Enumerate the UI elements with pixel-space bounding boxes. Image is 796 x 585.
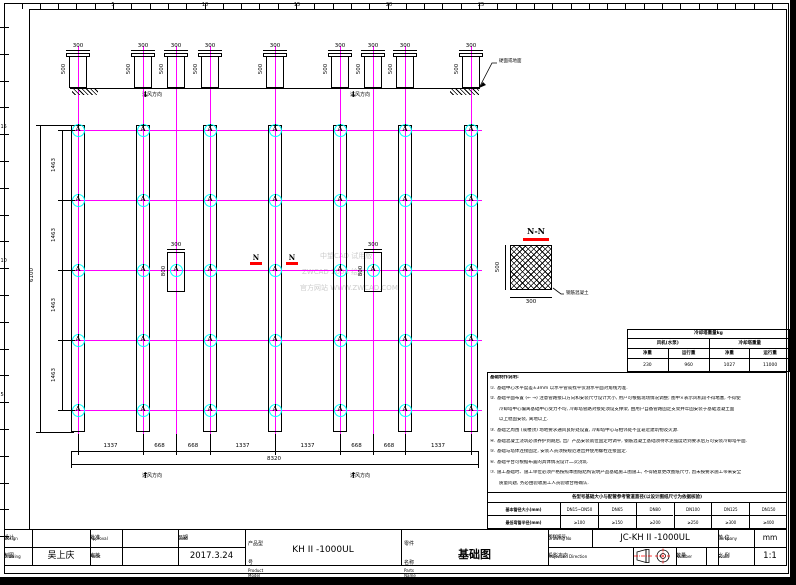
approval-by-value — [122, 529, 178, 547]
pedestal-width-dim: 300 — [264, 43, 286, 49]
ruler-tick-top — [571, 3, 572, 9]
design-label: 设计Design — [4, 529, 32, 547]
dim-ext — [58, 410, 75, 411]
ruler-tick-left — [0, 322, 9, 323]
edge-strip-right — [790, 0, 796, 585]
anchor-letter: A — [137, 126, 150, 134]
pedestal-height-dim: 500 — [193, 61, 199, 77]
title-block-vline — [4, 529, 5, 566]
weight-table-group: 冷却塔重量 — [709, 339, 791, 349]
pipe-table-cell: ≥300 — [711, 516, 749, 529]
ground-line — [70, 88, 480, 89]
scale-value: 1:1 — [754, 547, 786, 565]
pedestal-dim-line — [361, 50, 385, 51]
weight-table-value: 960 — [668, 359, 709, 372]
strip-foundation — [136, 125, 150, 432]
col-dim-label: 668 — [178, 443, 208, 449]
section-cut-letter: N — [286, 253, 298, 261]
ruler-tick-top — [131, 3, 132, 9]
weight-table-value: 230 — [627, 359, 668, 372]
dim-ext — [36, 125, 74, 126]
anchor-letter: A — [399, 196, 412, 204]
pipe-table-cell: 最低弯管半径(mm) — [487, 516, 560, 529]
dim-ext — [71, 451, 72, 468]
ruler-number-top: 15 — [291, 3, 303, 9]
pipe-table-cell: ≥100 — [560, 516, 598, 529]
title-block-vline — [401, 529, 402, 566]
ruler-tick-left — [0, 349, 9, 350]
note-line: ③. 基础之周围 (或楼顶) 场地要求通风良好处设置, 冷却塔中心与相邻处不宜靠… — [490, 428, 787, 434]
anchor-letter: A — [269, 266, 282, 274]
dim-ext — [58, 270, 75, 271]
title-block-vline — [32, 529, 33, 566]
col-dim-label: 668 — [342, 443, 372, 449]
dim-ext — [36, 432, 74, 433]
anchor-letter: A — [399, 406, 412, 414]
ruler-tick-top — [772, 3, 773, 9]
anchor-letter: A — [465, 266, 478, 274]
product-model-value: KH II -1000UL — [245, 545, 401, 555]
col-dim-label: 1337 — [293, 443, 323, 449]
pipe-table-cell: ≥250 — [674, 516, 712, 529]
dim-ext — [58, 200, 75, 201]
row-overall-label: 6100 — [29, 267, 35, 283]
title-block-vline — [592, 529, 593, 547]
pedestal-body — [364, 56, 382, 88]
col-dim-label: 668 — [374, 443, 404, 449]
ruler-tick-top — [699, 3, 700, 9]
detail-height-dim: 800 — [161, 263, 167, 279]
title-block-vline — [245, 529, 246, 566]
ruler-tick-left — [0, 107, 9, 108]
pedestal-width-dim: 300 — [394, 43, 416, 49]
unit-value: mm — [754, 529, 786, 547]
ruler-tick-top — [333, 3, 334, 9]
col-overall-label: 8320 — [259, 456, 289, 462]
concrete-hatch-block — [510, 245, 552, 290]
dim-ext — [58, 130, 75, 131]
pipe-table-cell: 基本管径大小(mm) — [487, 503, 560, 516]
ruler-number-top: 10 — [199, 3, 211, 9]
ruler-tick-left — [0, 402, 9, 403]
section-side-dim: 500 — [495, 259, 501, 275]
pedestal-body — [331, 56, 349, 88]
weight-table-value: 1027 — [709, 359, 750, 372]
weight-table-header: 净重 — [709, 349, 750, 359]
section-bottom-dim: 300 — [519, 299, 543, 305]
note-line: ⑤. 基础与塔体连接固定, 安装人员须按规范进出并使用螺栓连接固定. — [490, 449, 787, 455]
note-line: ④. 基础混凝土浇筑必须养护到期后, 出厂产品安装就位固定时调平, 钢筋混凝土基… — [490, 439, 787, 445]
dim-ext — [58, 340, 75, 341]
weight-table-header: 净重 — [627, 349, 668, 359]
pedestal-body — [462, 56, 480, 88]
dim-ext — [340, 434, 341, 455]
title-block-vline — [548, 529, 549, 566]
anchor-letter: A — [465, 406, 478, 414]
ruler-tick-top — [186, 3, 187, 9]
pedestal-width-dim: 300 — [165, 43, 187, 49]
anchor-letter: A — [137, 406, 150, 414]
ruler-tick-top — [40, 3, 41, 9]
date-label: 日期Date — [178, 529, 245, 547]
drawing-label: 制图Drawing — [4, 547, 32, 565]
row-dim-label: 1463 — [51, 297, 57, 313]
dim-ext — [478, 451, 479, 468]
anchor-letter: A — [204, 266, 217, 274]
drawing-sheet: 中望CAD 试用版 ZWCAD 2008 绘制 官方网站 WWW.ZWCAD.C… — [0, 0, 796, 585]
pipe-table-cell: DN15~DN50 — [560, 503, 598, 516]
ruler-tick-top — [259, 3, 260, 9]
ruler-tick-top — [552, 3, 553, 9]
projection-symbol-icon — [634, 548, 675, 564]
section-title-underline — [523, 238, 549, 241]
dim-ext — [143, 434, 144, 455]
ruler-tick-top — [625, 3, 626, 9]
ruler-tick-left — [0, 509, 9, 510]
pedestal-height-dim: 500 — [388, 61, 394, 77]
anchor-letter: A — [334, 336, 347, 344]
ruler-tick-top — [278, 3, 279, 9]
up-arrow-icon: ↑ — [142, 472, 149, 480]
ruler-tick-left — [0, 375, 9, 376]
airflow-bottom-left: ↑ 进风方向 — [142, 472, 162, 480]
weight-table-value: 11000 — [749, 359, 790, 372]
pedestal-height-dim: 500 — [159, 61, 165, 77]
dim-overall-bottom — [71, 464, 478, 465]
drawing-no-label: 图样编号 Drawing No — [548, 529, 592, 547]
title-block-vline — [718, 529, 719, 566]
anchor-letter: A — [334, 196, 347, 204]
pedestal-dim-line — [131, 50, 155, 51]
pedestal-body — [396, 56, 414, 88]
weight-table-title: 冷却塔重量kg — [627, 329, 790, 339]
pedestal-body — [69, 56, 87, 88]
pedestal-width-dim: 300 — [199, 43, 221, 49]
centerline-vertical — [176, 46, 177, 435]
section-cut-underline — [250, 262, 262, 265]
title-block-mid-line — [4, 547, 245, 548]
anchor-letter: A — [269, 126, 282, 134]
ruler-tick-left — [0, 429, 9, 430]
ruler-tick-top — [223, 3, 224, 9]
ruler-tick-top — [22, 3, 23, 9]
ruler-tick-top — [351, 3, 352, 9]
col-dim-label: 1337 — [228, 443, 258, 449]
inner-frame-top — [29, 9, 786, 10]
pipe-table-cell: DN80 — [636, 503, 674, 516]
strip-foundation — [333, 125, 347, 432]
drawing-no-value: JC-KH II -1000UL — [592, 529, 718, 547]
note-line: 质量问题, 务必由验收施工人员验收合格确认. — [499, 481, 787, 487]
ruler-tick-top — [497, 3, 498, 9]
weight-table-group: 风机(水泵) — [627, 339, 709, 349]
pedestal-dim-line — [459, 50, 483, 51]
ruler-tick-top — [241, 3, 242, 9]
pedestal-dim-line — [263, 50, 287, 51]
dim-ext — [405, 434, 406, 455]
pedestal-body — [134, 56, 152, 88]
anchor-letter: A — [269, 406, 282, 414]
pedestal-body — [167, 56, 185, 88]
col-dim-label: 668 — [145, 443, 175, 449]
anchor-letter: A — [204, 196, 217, 204]
dim-ext — [210, 434, 211, 455]
pedestal-dim-line — [198, 50, 222, 51]
pedestal-height-dim: 500 — [454, 61, 460, 77]
anchor-letter: A — [334, 406, 347, 414]
weight-table-header: 运行重 — [749, 349, 790, 359]
audit-label: 审核Audit — [90, 547, 122, 565]
ruler-number-left: 5 — [1, 393, 12, 399]
airflow-top-left: ↓ 进风方向 — [142, 91, 162, 99]
pipe-table-cell: DN125 — [711, 503, 749, 516]
ruler-tick-top — [95, 3, 96, 9]
pipe-table-cell: DN65 — [598, 503, 636, 516]
ground-hatch-right — [450, 89, 479, 95]
ruler-tick-left — [0, 188, 9, 189]
ruler-tick-top — [442, 3, 443, 9]
col-dim-label: 1337 — [96, 443, 126, 449]
pedestal-dim-line — [66, 50, 90, 51]
down-arrow-icon: ↓ — [350, 91, 357, 99]
up-arrow-icon: ↑ — [350, 472, 357, 480]
detail-box — [167, 252, 185, 292]
ruler-tick-top — [680, 3, 681, 9]
title-block-vline — [90, 529, 91, 566]
airflow-top-right: ↓ 进风方向 — [350, 91, 370, 99]
section-cut-underline — [286, 262, 298, 265]
pedestal-height-dim: 500 — [356, 61, 362, 77]
watermark-line-3: 官方网站 WWW.ZWCAD.COM — [300, 283, 398, 293]
ruler-number-left: 15 — [1, 125, 12, 131]
drawing-by-value: 吴上庆 — [32, 547, 90, 565]
anchor-letter: A — [204, 406, 217, 414]
date-value: 2017.3.24 — [178, 547, 245, 565]
row-dim-label: 1463 — [51, 157, 57, 173]
projection-label: 投影方向 Projection Direction — [548, 547, 633, 565]
number-value — [706, 547, 718, 565]
anchor-letter: A — [269, 336, 282, 344]
dim-ext — [275, 434, 276, 455]
col-dim-label: 1337 — [423, 443, 453, 449]
pipe-table-header: 各型号基础大小与配管参考管道直径(以设计图纸尺寸为依据核验) — [487, 492, 787, 503]
note-line: 以上稳固安装, 离地以上. — [499, 417, 787, 423]
section-dim-line-bottom — [510, 297, 552, 298]
pipe-table-cell: DN100 — [674, 503, 712, 516]
weight-table-header: 运行重 — [668, 349, 709, 359]
ruler-tick-top — [735, 3, 736, 9]
approval-label: 批准Approval — [90, 529, 122, 547]
anchor-letter: A — [465, 336, 478, 344]
note-line: ①. 基础中心水平度差±3mm 以水平管或找平仪测水平面对角线为准. — [490, 386, 787, 392]
edge-strip-bottom — [0, 577, 796, 585]
note-line: 冷却塔中心偏离基础中心受力不均, 冷却塔管路对接处须设支撑架, 由用户自备管路固… — [499, 407, 787, 413]
note-line: 基础制作说明: — [490, 375, 787, 381]
ruler-tick-top — [461, 3, 462, 9]
detail-dim-line — [364, 249, 382, 250]
strip-foundation — [268, 125, 282, 432]
title-block-vline — [676, 547, 677, 565]
anchor-letter: A — [399, 336, 412, 344]
pipe-table-cell: ≥400 — [749, 516, 787, 529]
detail-width-dim: 300 — [362, 242, 384, 248]
ground-hatch-left — [72, 89, 98, 95]
reinforced-concrete-label: 钢筋混凝土 — [566, 291, 589, 296]
row-dim-label: 1463 — [51, 227, 57, 243]
anchor-letter: A — [334, 126, 347, 134]
anchor-letter: A — [137, 266, 150, 274]
pedestal-width-dim: 300 — [67, 43, 89, 49]
scale-label: 比 例Scale — [718, 547, 754, 565]
pedestal-width-dim: 300 — [329, 43, 351, 49]
ruler-tick-top — [424, 3, 425, 9]
ruler-tick-left — [0, 81, 9, 82]
title-block-vline — [633, 547, 634, 565]
note-line: ⑥. 基础平台可根据布置的具体情况设计二次浇筑. — [490, 460, 787, 466]
section-title: N-N — [521, 226, 551, 236]
ruler-tick-top — [76, 3, 77, 9]
ruler-tick-left — [0, 456, 9, 457]
parts-name-value: 基础图 — [401, 546, 548, 562]
ruler-number-top: 25 — [475, 3, 487, 9]
strip-foundation — [203, 125, 217, 432]
title-block-vline — [754, 529, 755, 566]
ruler-tick-left — [0, 161, 9, 162]
ruler-tick-left — [0, 215, 9, 216]
dim-overall-left — [40, 125, 41, 432]
strip-foundation — [398, 125, 412, 432]
ruler-number-top: 5 — [107, 3, 119, 9]
pedestal-height-dim: 500 — [61, 61, 67, 77]
title-block-mid-line — [548, 547, 786, 548]
pedestal-width-dim: 300 — [460, 43, 482, 49]
audit-by-value — [122, 547, 178, 565]
ruler-tick-left — [0, 241, 9, 242]
detail-box — [364, 252, 382, 292]
ruler-tick-top — [717, 3, 718, 9]
ruler-tick-top — [662, 3, 663, 9]
pedestal-width-dim: 300 — [132, 43, 154, 49]
row-dim-label: 1463 — [51, 367, 57, 383]
pedestal-width-dim: 300 — [362, 43, 384, 49]
pipe-table-cell: ≥200 — [636, 516, 674, 529]
dim-ext — [78, 434, 79, 455]
ruler-tick-top — [314, 3, 315, 9]
centerline-vertical — [373, 46, 374, 435]
anchor-letter: A — [137, 196, 150, 204]
detail-height-dim: 800 — [358, 263, 364, 279]
title-block-vline — [178, 529, 179, 566]
ruler-tick-left — [0, 54, 9, 55]
design-by-value — [32, 529, 90, 547]
anchor-letter: A — [334, 266, 347, 274]
anchor-letter: A — [204, 336, 217, 344]
pipe-table-cell: ≥150 — [598, 516, 636, 529]
ruler-tick-top — [534, 3, 535, 9]
ruler-number-left: 10 — [1, 259, 12, 265]
ruler-tick-top — [406, 3, 407, 9]
section-cut-letter: N — [250, 253, 262, 261]
pedestal-dim-line — [164, 50, 188, 51]
dim-ext — [176, 434, 177, 455]
anchor-letter: A — [465, 196, 478, 204]
note-line: ②. 基础平面布置 (← →) 注意管路接口方向和安装尺寸设计大小, 用户可根据… — [490, 396, 787, 402]
pipe-table-cell: DN150 — [749, 503, 787, 516]
strip-foundation — [464, 125, 478, 432]
ruler-tick-top — [168, 3, 169, 9]
anchor-letter: A — [137, 336, 150, 344]
pedestal-dim-line — [328, 50, 352, 51]
ruler-tick-left — [0, 27, 9, 28]
note-line: ⑦. 施工基础时、施工单位必须严格按照本图纸结构说明产品基础施工图施工, 不得随… — [490, 470, 787, 476]
title-block-vline — [122, 529, 123, 566]
ground-surface-label: 硬面或地面 — [499, 59, 522, 64]
anchor-letter: A — [399, 126, 412, 134]
strip-foundation — [71, 125, 85, 432]
anchor-letter: A — [399, 266, 412, 274]
anchor-letter: A — [204, 126, 217, 134]
ruler-tick-top — [754, 3, 755, 9]
pedestal-height-dim: 500 — [258, 61, 264, 77]
detail-width-dim: 300 — [165, 242, 187, 248]
detail-dim-line — [167, 249, 185, 250]
pedestal-height-dim: 500 — [323, 61, 329, 77]
ruler-tick-top — [644, 3, 645, 9]
ruler-number-top: 20 — [383, 3, 395, 9]
ruler-tick-top — [516, 3, 517, 9]
pedestal-body — [266, 56, 284, 88]
anchor-letter: A — [465, 126, 478, 134]
ruler-tick-top — [369, 3, 370, 9]
pedestal-height-dim: 500 — [126, 61, 132, 77]
dim-ext — [471, 434, 472, 455]
anchor-letter: A — [269, 196, 282, 204]
company-label: 单 位Company — [718, 529, 754, 547]
airflow-bottom-right: ↑ 进风方向 — [350, 472, 370, 480]
ruler-tick-top — [607, 3, 608, 9]
pedestal-dim-line — [393, 50, 417, 51]
ruler-tick-left — [0, 483, 9, 484]
ruler-tick-left — [0, 295, 9, 296]
section-dim-line-left — [505, 245, 506, 290]
ruler-tick-left — [0, 268, 9, 269]
number-label: 数量Number — [676, 547, 706, 565]
title-block-vline — [786, 529, 787, 566]
ruler-tick-top — [150, 3, 151, 9]
title-block-vline — [706, 547, 707, 565]
pedestal-body — [201, 56, 219, 88]
ruler-tick-top — [58, 3, 59, 9]
ruler-tick-left — [0, 134, 9, 135]
ruler-tick-top — [589, 3, 590, 9]
